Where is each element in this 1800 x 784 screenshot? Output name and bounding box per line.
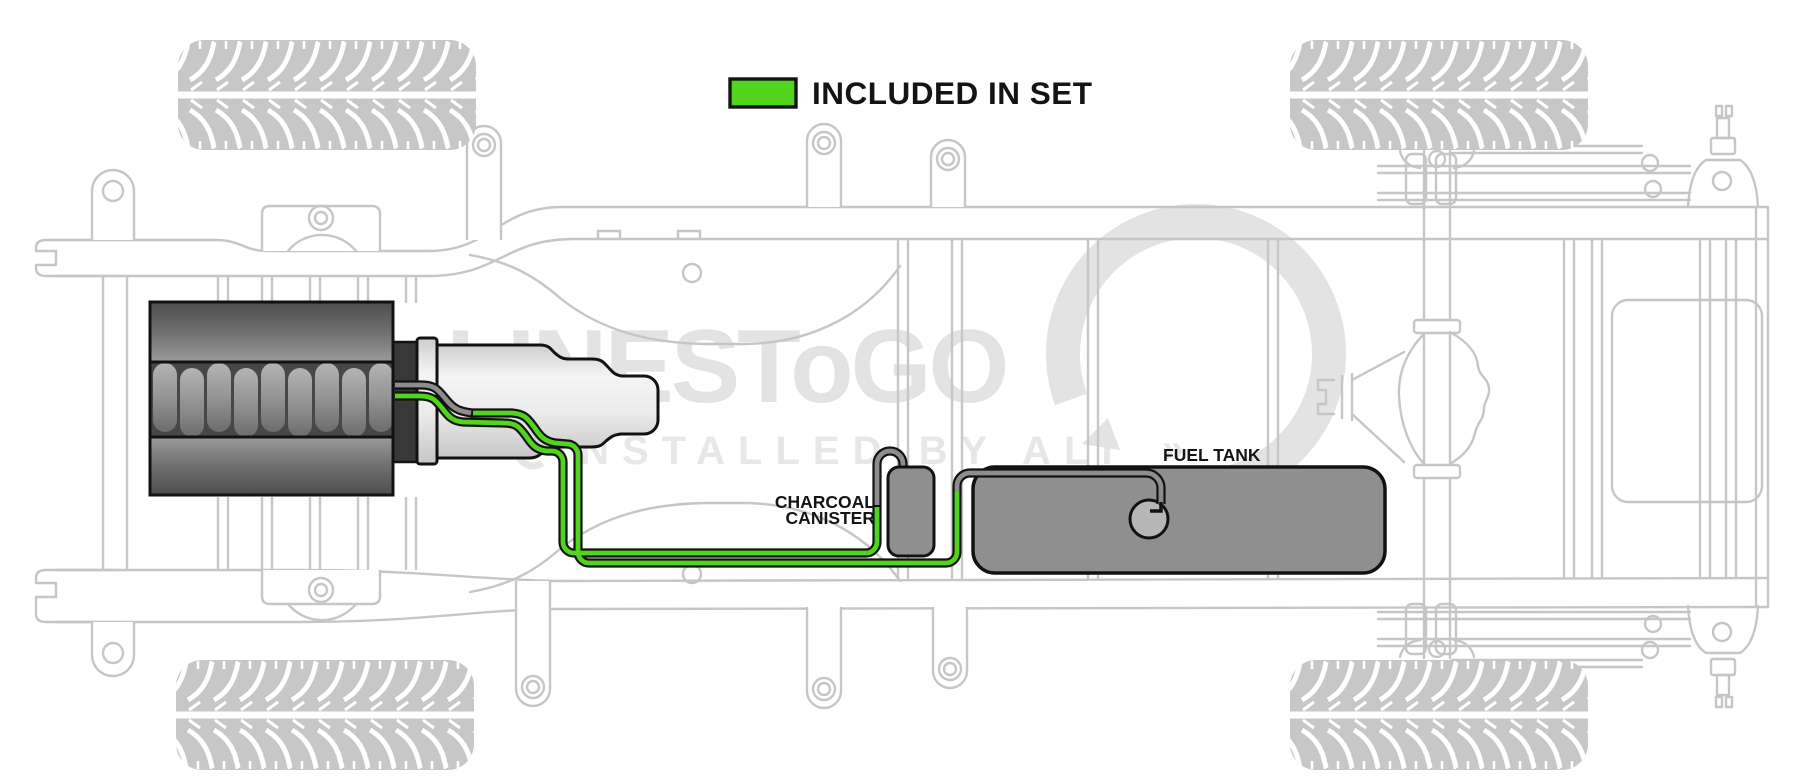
engine-block	[150, 302, 420, 495]
legend: INCLUDED IN SET	[730, 75, 1093, 111]
valve-cover-top	[150, 302, 393, 362]
charcoal-canister	[888, 467, 934, 556]
tire-rear-bottom	[1276, 660, 1612, 770]
rear-box	[1612, 300, 1762, 502]
front-tow-hook-top	[36, 240, 118, 276]
body-mount-bottom	[262, 570, 380, 620]
differential-housing	[1399, 332, 1489, 464]
fuel-tank-label: FUEL TANK	[1163, 445, 1261, 465]
front-crossmember-legs	[103, 277, 127, 569]
legend-label: INCLUDED IN SET	[812, 75, 1093, 111]
valve-cover-bottom	[150, 437, 393, 495]
front-tab-top-left-hole	[103, 181, 123, 201]
rear-ladder	[1564, 240, 1736, 578]
front-tab-bottom-left-hole	[103, 643, 123, 663]
legend-swatch	[730, 79, 796, 107]
cab-mount-hole-top	[683, 264, 701, 282]
manifold-tubes	[153, 363, 393, 437]
body-mount-top	[262, 206, 380, 251]
fuel-tank	[973, 467, 1385, 573]
tire-front-bottom	[162, 660, 498, 770]
front-tow-hook-bottom	[36, 570, 118, 622]
tire-front-left	[164, 40, 500, 150]
fuel-line-diagram: LINESToGO INSTALLED BY ALI »	[0, 0, 1800, 784]
rear-axle	[1318, 150, 1489, 658]
tire-rear-right-top	[1276, 40, 1612, 150]
charcoal-canister-label-line2: CANISTER	[786, 508, 876, 528]
chassis-diagram-canvas: LINESToGO INSTALLED BY ALI »	[0, 0, 1800, 784]
